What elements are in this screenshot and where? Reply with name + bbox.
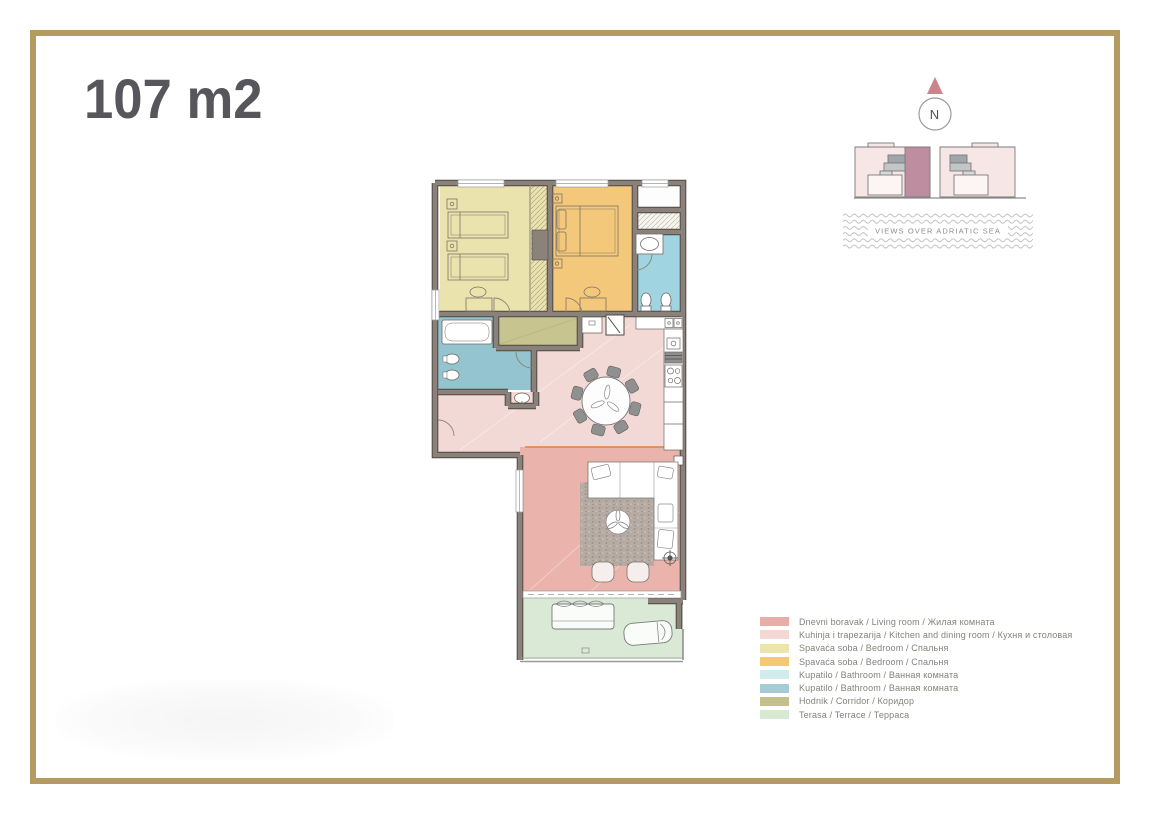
compass-label: N bbox=[930, 107, 940, 122]
site-roof-notch bbox=[868, 143, 894, 147]
legend-label: Kupatilo / Bathroom / Ванная комната bbox=[799, 670, 958, 680]
legend: Dnevni boravak / Living room / Жилая ком… bbox=[760, 615, 1072, 721]
legend-swatch bbox=[760, 630, 789, 639]
site-buildings bbox=[855, 143, 1015, 197]
legend-item-corridor: Hodnik / Corridor / Коридор bbox=[760, 695, 1072, 708]
site-core bbox=[950, 155, 967, 163]
legend-item-living: Dnevni boravak / Living room / Жилая ком… bbox=[760, 615, 1072, 628]
armchair bbox=[592, 562, 614, 582]
sun-lounger bbox=[623, 620, 673, 646]
site-core bbox=[888, 155, 905, 163]
armchair bbox=[627, 562, 649, 582]
legend-label: Dnevni boravak / Living room / Жилая ком… bbox=[799, 617, 995, 627]
north-triangle-icon bbox=[927, 77, 943, 94]
legend-label: Hodnik / Corridor / Коридор bbox=[799, 696, 914, 706]
legend-item-bathroom-2: Kupatilo / Bathroom / Ванная комната bbox=[760, 681, 1072, 694]
legend-swatch bbox=[760, 670, 789, 679]
legend-item-bedroom-1: Spavaća soba / Bedroom / Спальня bbox=[760, 642, 1072, 655]
compass-icon: N bbox=[907, 72, 963, 136]
site-highlighted-unit bbox=[905, 147, 930, 197]
legend-swatch bbox=[760, 710, 789, 719]
site-roof-notch bbox=[972, 143, 998, 147]
legend-label: Terasa / Terrace / Терраса bbox=[799, 710, 909, 720]
site-core bbox=[950, 163, 971, 171]
site-court bbox=[954, 175, 988, 195]
floor-plan bbox=[430, 170, 700, 675]
legend-item-terrace: Terasa / Terrace / Терраса bbox=[760, 708, 1072, 721]
watermark-remnant bbox=[55, 680, 395, 760]
sea-view-band: VIEWS OVER ADRIATIC SEA bbox=[843, 212, 1033, 250]
legend-item-kitchen-dining: Kuhinja i trapezarija / Kitchen and dini… bbox=[760, 628, 1072, 641]
legend-swatch bbox=[760, 657, 789, 666]
wardrobe-hatch bbox=[636, 212, 682, 231]
legend-label: Spavaća soba / Bedroom / Спальня bbox=[799, 657, 949, 667]
site-core bbox=[884, 163, 905, 171]
outdoor-sofa bbox=[552, 604, 614, 629]
site-plan bbox=[850, 133, 1030, 208]
legend-item-bathroom-1: Kupatilo / Bathroom / Ванная комната bbox=[760, 668, 1072, 681]
sea-view-label: VIEWS OVER ADRIATIC SEA bbox=[868, 225, 1008, 238]
legend-swatch bbox=[760, 684, 789, 693]
legend-swatch bbox=[760, 617, 789, 626]
site-court bbox=[868, 175, 902, 195]
legend-label: Spavaća soba / Bedroom / Спальня bbox=[799, 643, 949, 653]
page-title: 107 m2 bbox=[84, 66, 263, 131]
legend-swatch bbox=[760, 697, 789, 706]
legend-label: Kupatilo / Bathroom / Ванная комната bbox=[799, 683, 958, 693]
ceiling-fan-icon bbox=[606, 510, 630, 534]
legend-swatch bbox=[760, 644, 789, 653]
legend-label: Kuhinja i trapezarija / Kitchen and dini… bbox=[799, 630, 1072, 640]
legend-item-bedroom-2: Spavaća soba / Bedroom / Спальня bbox=[760, 655, 1072, 668]
